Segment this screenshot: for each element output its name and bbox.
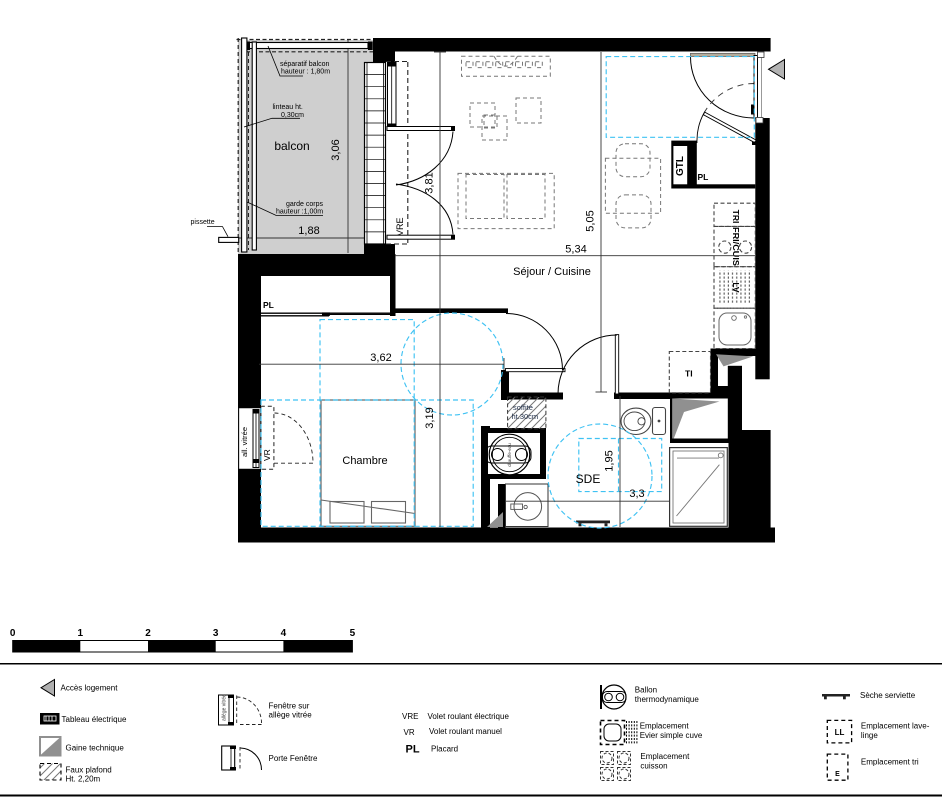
svg-text:2: 2 — [145, 628, 151, 639]
svg-text:hauteur : 1,80m: hauteur : 1,80m — [281, 69, 330, 76]
svg-text:VR: VR — [404, 728, 415, 737]
svg-text:3: 3 — [213, 628, 219, 639]
svg-text:chauffe-eau: chauffe-eau — [507, 443, 512, 467]
svg-text:hauteur :1,00m: hauteur :1,00m — [276, 209, 323, 216]
svg-text:Tableau électrique: Tableau électrique — [62, 715, 127, 724]
svg-text:3,62: 3,62 — [370, 352, 391, 364]
svg-text:Séjour / Cuisine: Séjour / Cuisine — [513, 266, 591, 278]
svg-text:VRE: VRE — [395, 217, 405, 236]
svg-text:3,81: 3,81 — [424, 172, 436, 193]
svg-text:allège vitrée: allège vitrée — [269, 711, 313, 720]
svg-text:Porte Fenêtre: Porte Fenêtre — [269, 754, 318, 763]
svg-text:LV: LV — [731, 282, 741, 293]
svg-text:3,19: 3,19 — [424, 407, 436, 428]
svg-text:1: 1 — [78, 628, 84, 639]
svg-text:thermodynamique: thermodynamique — [635, 695, 700, 704]
svg-text:Placard: Placard — [431, 745, 458, 754]
svg-text:Emplacement: Emplacement — [640, 722, 690, 731]
svg-text:Volet roulant électrique: Volet roulant électrique — [428, 712, 510, 721]
svg-text:linteau ht.: linteau ht. — [273, 104, 303, 111]
svg-text:Accès logement: Accès logement — [61, 684, 119, 693]
svg-text:ht.30cm: ht.30cm — [512, 412, 539, 421]
svg-text:Ht. 2,20m: Ht. 2,20m — [66, 775, 101, 784]
svg-text:Volet roulant manuel: Volet roulant manuel — [429, 727, 502, 736]
svg-text:TI: TI — [685, 369, 693, 379]
svg-text:soffite: soffite — [513, 403, 533, 412]
svg-text:FRI/CUIS: FRI/CUIS — [731, 227, 741, 266]
svg-text:3,3: 3,3 — [629, 488, 644, 500]
svg-text:cuisson: cuisson — [640, 762, 667, 771]
svg-text:PL: PL — [263, 300, 274, 310]
svg-text:VRE: VRE — [402, 712, 418, 721]
svg-text:PL: PL — [406, 744, 420, 756]
svg-text:LL: LL — [835, 728, 845, 737]
svg-text:VR: VR — [262, 449, 272, 461]
svg-text:Ballon: Ballon — [635, 686, 657, 695]
svg-text:Emplacement lave-: Emplacement lave- — [861, 722, 930, 731]
svg-text:Chambre: Chambre — [342, 455, 387, 467]
svg-text:0: 0 — [10, 628, 16, 639]
svg-text:Fenêtre sur: Fenêtre sur — [269, 702, 310, 711]
svg-text:4: 4 — [281, 628, 287, 639]
svg-text:Evier simple cuve: Evier simple cuve — [640, 731, 703, 740]
svg-text:TRI: TRI — [731, 210, 741, 224]
svg-text:balcon: balcon — [274, 139, 309, 153]
svg-text:pissette: pissette — [191, 219, 215, 226]
svg-text:linge: linge — [861, 731, 878, 740]
svg-text:garde corps: garde corps — [286, 201, 323, 208]
svg-text:1,88: 1,88 — [298, 225, 319, 237]
svg-text:all. vitrée: all. vitrée — [240, 427, 249, 457]
svg-text:Sèche serviette: Sèche serviette — [860, 691, 916, 700]
svg-text:Emplacement tri: Emplacement tri — [861, 758, 919, 767]
svg-text:E: E — [835, 771, 840, 778]
svg-text:5: 5 — [350, 628, 356, 639]
svg-text:3,06: 3,06 — [330, 139, 342, 160]
svg-text:allège vitrée: allège vitrée — [222, 694, 228, 721]
svg-text:Emplacement: Emplacement — [640, 752, 690, 761]
svg-text:séparatif balcon: séparatif balcon — [280, 61, 330, 68]
svg-text:Faux plafond: Faux plafond — [66, 766, 112, 775]
svg-text:GTL: GTL — [675, 156, 686, 176]
svg-text:SDE: SDE — [576, 472, 601, 486]
svg-text:Gaine technique: Gaine technique — [66, 744, 125, 753]
svg-text:5,05: 5,05 — [585, 210, 597, 231]
svg-text:PL: PL — [698, 172, 709, 182]
svg-text:1,95: 1,95 — [604, 450, 616, 471]
svg-text:5,34: 5,34 — [565, 244, 586, 256]
